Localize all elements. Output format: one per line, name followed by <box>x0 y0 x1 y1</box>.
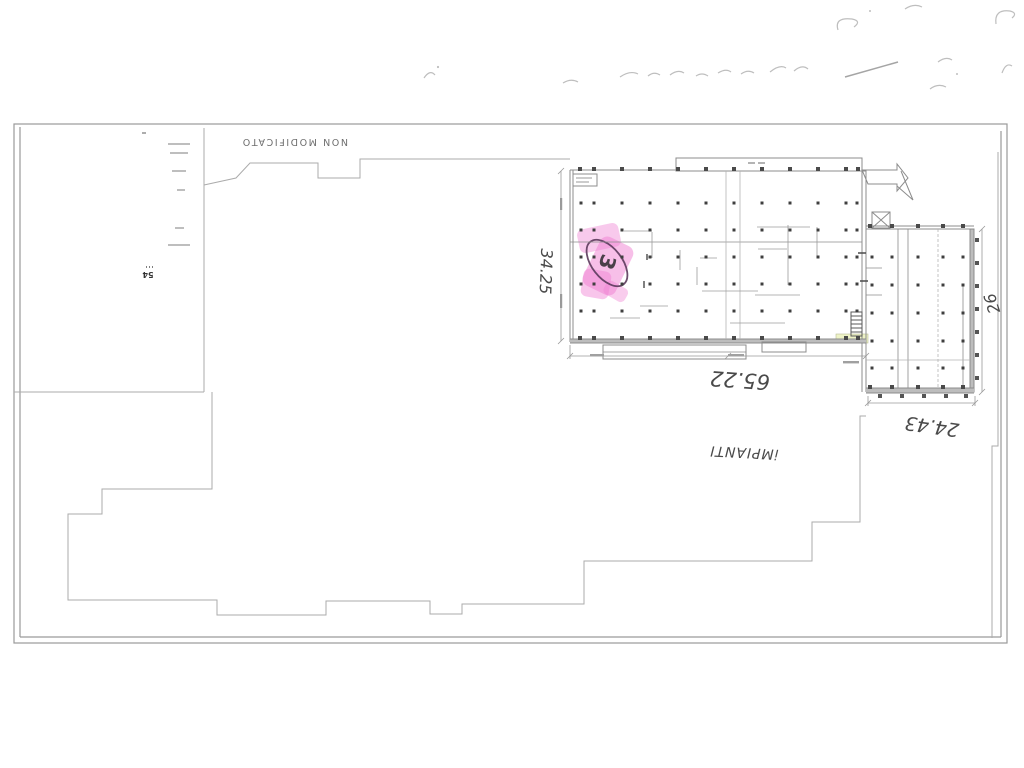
lot-boundary <box>14 128 998 638</box>
ghost-squiggles <box>424 5 1015 89</box>
legend-number: 54 <box>138 270 158 279</box>
building-right-wing <box>858 226 974 393</box>
column-grid <box>578 167 979 398</box>
direction-arrow-icon <box>862 164 913 200</box>
legend-marks <box>142 133 190 267</box>
stamp-non-modificato: NON MODIFICATO <box>244 136 348 147</box>
handwritten-dim-left: 34.25 <box>535 241 556 302</box>
scanned-floor-plan-page: NON MODIFICATO 54 34.25 65.22 24.43 26 i… <box>0 0 1024 768</box>
ladder-symbol <box>851 312 862 336</box>
plan-drawing <box>0 0 1024 768</box>
